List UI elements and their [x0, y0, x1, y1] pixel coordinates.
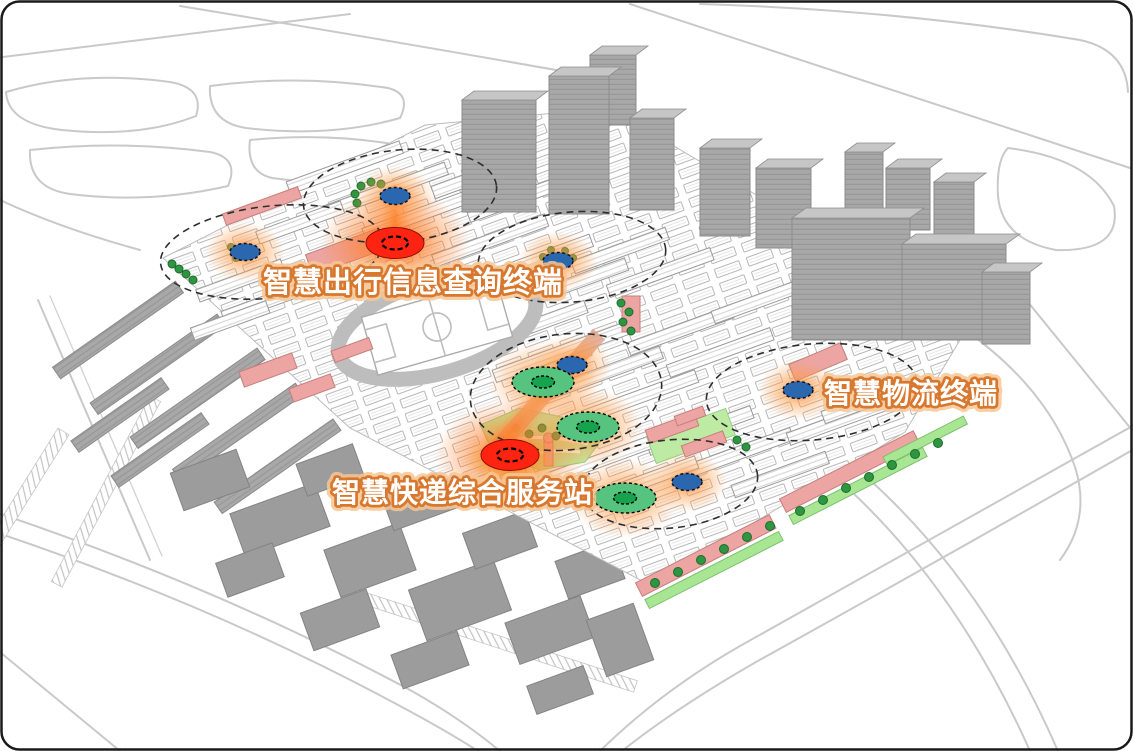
svg-text:智慧出行信息查询终端: 智慧出行信息查询终端: [263, 265, 563, 299]
blue-terminal-marker: [672, 474, 702, 491]
blue-terminal-marker: [230, 244, 260, 261]
label-logistics-terminal: 智慧物流终端 智慧物流终端: [824, 377, 998, 410]
label-travel-terminal: 智慧出行信息查询终端 智慧出行信息查询终端: [263, 265, 563, 299]
green-ring-marker: [594, 483, 656, 513]
masterplan-canvas: 智慧出行信息查询终端 智慧出行信息查询终端 智慧快递综合服务站 智慧快递综合服务…: [0, 0, 1133, 751]
label-express-station: 智慧快递综合服务站 智慧快递综合服务站: [332, 476, 593, 509]
svg-text:智慧物流终端: 智慧物流终端: [824, 377, 998, 410]
red-station-marker: [481, 440, 539, 471]
green-ring-marker: [512, 367, 574, 397]
red-station-marker: [366, 228, 424, 259]
blue-terminal-marker: [783, 382, 813, 399]
svg-text:智慧快递综合服务站: 智慧快递综合服务站: [332, 476, 593, 509]
green-ring-marker: [557, 412, 619, 442]
blue-terminal-marker: [380, 188, 410, 205]
masterplan-figure: 智慧出行信息查询终端 智慧出行信息查询终端 智慧快递综合服务站 智慧快递综合服务…: [0, 0, 1133, 751]
